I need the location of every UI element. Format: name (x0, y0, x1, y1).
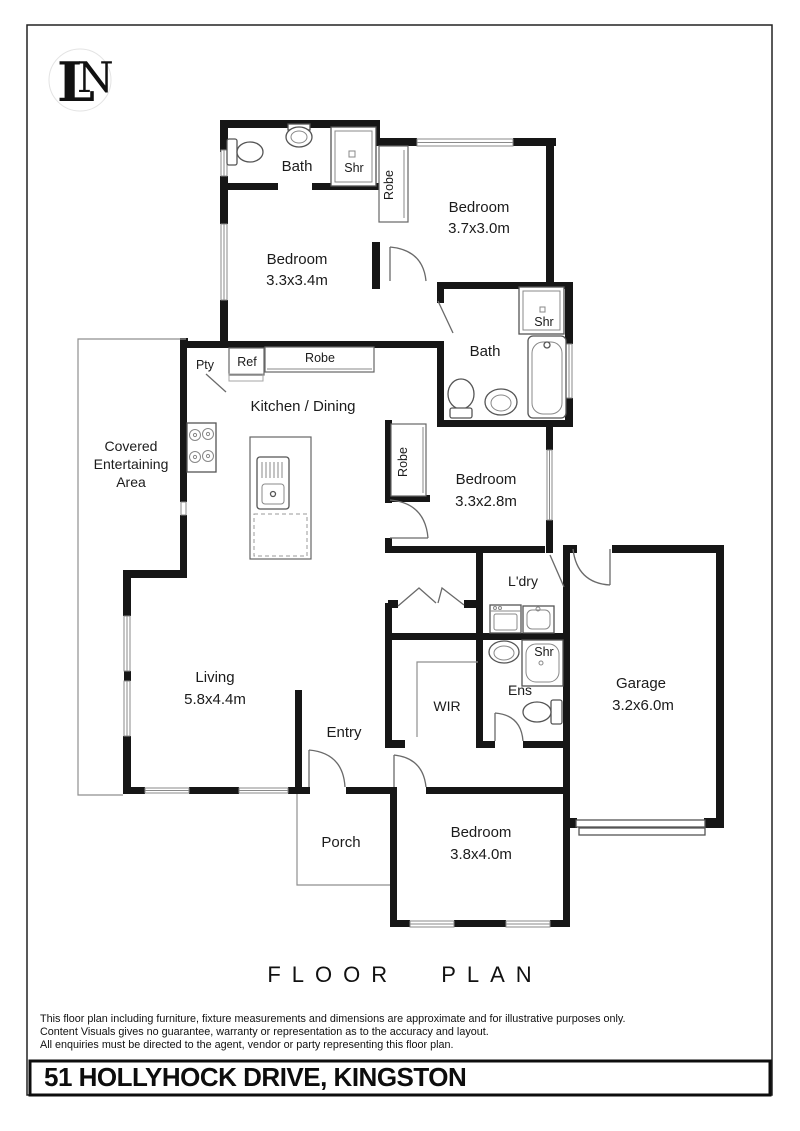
ensuite-label: Ens (508, 682, 532, 698)
door-laundry-leaf (550, 555, 564, 587)
kitchen-dining-label: Kitchen / Dining (250, 398, 355, 415)
fridge-label: Ref (237, 355, 257, 369)
bath-top-label: Bath (282, 158, 313, 175)
disclaimer-line-1: This floor plan including furniture, fix… (40, 1013, 626, 1025)
toilet-bowl-ensuite (523, 702, 551, 722)
disclaimer-line-2: Content Visuals gives no guarantee, warr… (40, 1026, 489, 1038)
logo-letter-n: N (77, 53, 114, 102)
entry-label: Entry (326, 724, 362, 741)
door-front-entry (309, 750, 345, 787)
shower-ens-label: Shr (534, 645, 553, 659)
garage-panel-door-2 (579, 828, 705, 835)
door-bedroom-bottom (394, 755, 426, 787)
basin-bath-top (286, 127, 312, 147)
floor-plan-page: L N (0, 0, 800, 1131)
address-text: 51 HOLLYHOCK DRIVE, KINGSTON (44, 1062, 466, 1092)
garage-dims: 3.2x6.0m (612, 697, 674, 714)
disclaimer-line-3: All enquiries must be directed to the ag… (40, 1039, 454, 1051)
laundry-label: L'dry (508, 573, 538, 589)
living-label: Living (195, 669, 234, 686)
door-bath-mid-leaf (438, 301, 453, 333)
bedroom-bottom-label: Bedroom (451, 824, 512, 841)
shower-mid-label: Shr (534, 315, 553, 329)
door-bedroom-top-right (390, 247, 426, 281)
covered-area-line2: Entertaining (94, 456, 169, 472)
bedroom-top-right-dims: 3.7x3.0m (448, 220, 510, 237)
door-ensuite (495, 713, 523, 741)
bathtub-tap (544, 342, 550, 348)
address-bar: 51 HOLLYHOCK DRIVE, KINGSTON (30, 1061, 770, 1095)
robe-top-label: Robe (382, 170, 396, 200)
garage-panel-door (576, 820, 705, 827)
toilet-bowl-bath-mid (448, 379, 474, 409)
linen-bifold-doors (398, 588, 464, 606)
toilet-bowl-bath-top (237, 142, 263, 162)
walls (123, 120, 724, 927)
agency-logo: L N (49, 49, 114, 114)
pantry-label: Pty (196, 358, 215, 372)
covered-area-line1: Covered (105, 438, 158, 454)
windows (124, 139, 572, 927)
pantry-corner (206, 374, 226, 392)
bedroom-bottom-dims: 3.8x4.0m (450, 846, 512, 863)
covered-area-line3: Area (116, 474, 146, 490)
toilet-tank-ensuite (551, 700, 562, 724)
porch-label: Porch (321, 834, 360, 851)
garage-label: Garage (616, 675, 666, 692)
fixtures (187, 124, 705, 835)
robe-mid-label: Robe (305, 351, 335, 365)
bath-mid-label: Bath (470, 343, 501, 360)
storage-units (206, 146, 478, 737)
bedroom-mid-dims: 3.3x2.8m (455, 493, 517, 510)
door-garage-entry (573, 549, 610, 585)
wir-label: WIR (433, 698, 460, 714)
door-bedroom-mid (390, 500, 428, 538)
kitchen-tap (271, 492, 276, 497)
bedroom-top-left-label: Bedroom (267, 251, 328, 268)
covered-area-outline (78, 339, 186, 795)
disclaimer: This floor plan including furniture, fix… (40, 1013, 626, 1051)
toilet-tank-bath-top (227, 139, 237, 165)
bedroom-mid-label: Bedroom (456, 471, 517, 488)
shower-top-label: Shr (344, 161, 363, 175)
toilet-tank-bath-mid (450, 408, 472, 418)
bedroom-top-right-label: Bedroom (449, 199, 510, 216)
living-dims: 5.8x4.4m (184, 691, 246, 708)
robe-bed3-label: Robe (396, 447, 410, 477)
floor-plan-title: FLOOR PLAN (267, 962, 542, 987)
bedroom-top-left-dims: 3.3x3.4m (266, 272, 328, 289)
floor-plan-canvas: L N (0, 0, 800, 1131)
